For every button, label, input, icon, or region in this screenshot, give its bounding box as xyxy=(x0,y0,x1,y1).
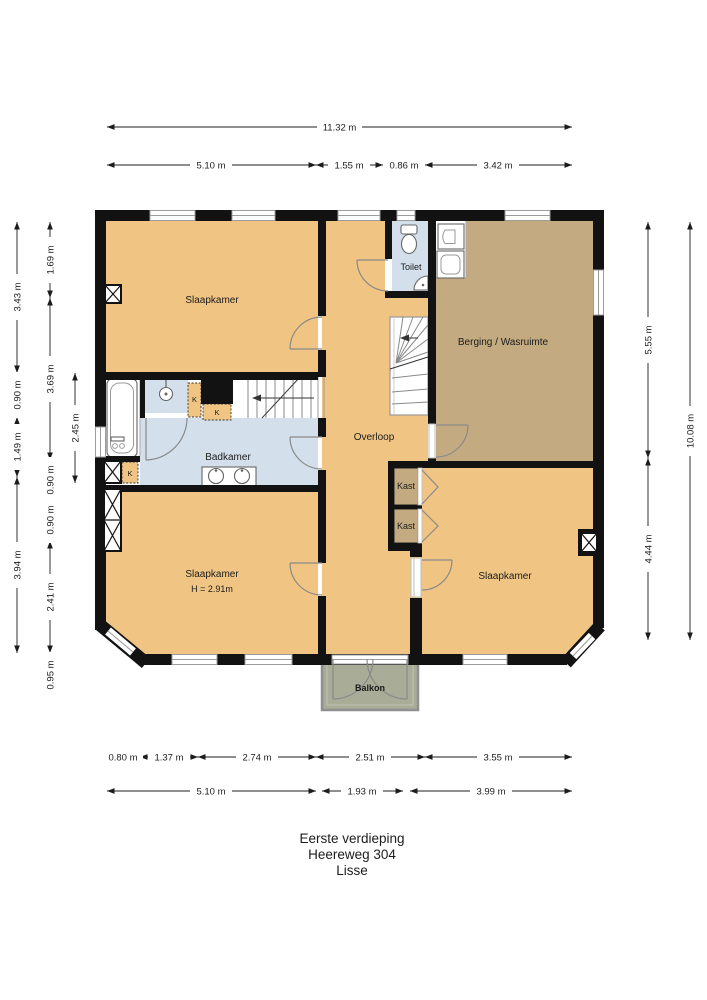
dim-label: 3.99 m xyxy=(476,787,505,798)
closet-label-k3: K xyxy=(127,469,132,478)
dim-label: 3.43 m xyxy=(13,282,24,311)
dim-label: 1.49 m xyxy=(13,432,24,461)
window xyxy=(96,427,106,457)
window xyxy=(338,211,380,221)
room-label-berging: Berging / Wasruimte xyxy=(458,337,549,348)
room-label-kast-top: Kast xyxy=(397,481,416,491)
dim-label: 2.41 m xyxy=(46,582,57,611)
room-label-kast-bottom: Kast xyxy=(397,521,416,531)
shaft-icon xyxy=(104,461,121,483)
dim-label: 5.55 m xyxy=(644,325,655,354)
dim-label: 3.42 m xyxy=(483,161,512,172)
dim-label: 2.45 m xyxy=(71,413,82,442)
window xyxy=(397,211,415,221)
berging-sink xyxy=(438,224,464,249)
dim-label: 1.55 m xyxy=(334,161,363,172)
stairs-winder xyxy=(390,317,428,415)
double-sink xyxy=(202,467,256,486)
bathtub xyxy=(107,379,137,457)
toilet-fixture xyxy=(401,225,417,254)
dim-label: 1.37 m xyxy=(154,753,183,764)
window xyxy=(172,655,217,665)
closet-label-k2: K xyxy=(214,408,219,417)
dim-label: 0.95 m xyxy=(46,660,57,689)
dim-label: 1.93 m xyxy=(347,787,376,798)
window xyxy=(463,655,507,665)
shaft-icon xyxy=(581,533,597,552)
window xyxy=(245,655,292,665)
dim-label: 5.10 m xyxy=(196,787,225,798)
window xyxy=(232,211,275,221)
room-slaapkamer-se xyxy=(410,468,593,654)
dim-label: 0.90 m xyxy=(46,505,57,534)
room-label-slaapkamer-sw: Slaapkamer xyxy=(185,569,239,580)
dim-label: 4.44 m xyxy=(644,534,655,563)
dim-label: 1.69 m xyxy=(46,245,57,274)
dim-label: 0.90 m xyxy=(13,380,24,409)
room-label-overloop: Overloop xyxy=(354,432,395,443)
shaft-icon xyxy=(104,489,121,551)
dim-label: 10.08 m xyxy=(686,414,697,448)
floorplan-canvas: 11.32 m 5.10 m 1.55 m 0.86 m 3.42 m 0.80… xyxy=(0,0,707,1000)
title-line-floor: Eerste verdieping xyxy=(299,831,404,846)
room-label-slaapkamer-se: Slaapkamer xyxy=(478,571,532,582)
dim-label: 3.69 m xyxy=(46,364,57,393)
dim-label: 2.51 m xyxy=(355,753,384,764)
floor-fills xyxy=(106,221,593,654)
dim-label: 11.32 m xyxy=(323,123,357,134)
plan-title: Eerste verdieping Heereweg 304 Lisse xyxy=(299,831,404,878)
washing-machine xyxy=(437,251,464,278)
room-label-toilet: Toilet xyxy=(400,262,422,272)
closet-label-k1: K xyxy=(192,395,197,404)
dim-label: 0.80 m xyxy=(108,753,137,764)
shaft-icon xyxy=(105,285,121,303)
room-label-badkamer: Badkamer xyxy=(205,452,251,463)
dim-label: 3.94 m xyxy=(13,550,24,579)
dim-label: 0.90 m xyxy=(46,465,57,494)
dim-label: 5.10 m xyxy=(196,161,225,172)
balcony-door-sill xyxy=(332,655,408,664)
stairs-straight xyxy=(233,377,324,418)
dim-label: 3.55 m xyxy=(483,753,512,764)
dim-label: 0.86 m xyxy=(389,161,418,172)
dim-label: 2.74 m xyxy=(242,753,271,764)
window xyxy=(150,211,195,221)
room-label-slaapkamer-sw-height: H = 2.91m xyxy=(191,584,233,594)
window xyxy=(594,270,604,315)
title-line-city: Lisse xyxy=(336,863,368,878)
title-line-street: Heereweg 304 xyxy=(308,847,396,862)
room-label-slaapkamer-nw: Slaapkamer xyxy=(185,295,239,306)
room-label-balkon: Balkon xyxy=(355,683,385,693)
window xyxy=(505,211,550,221)
